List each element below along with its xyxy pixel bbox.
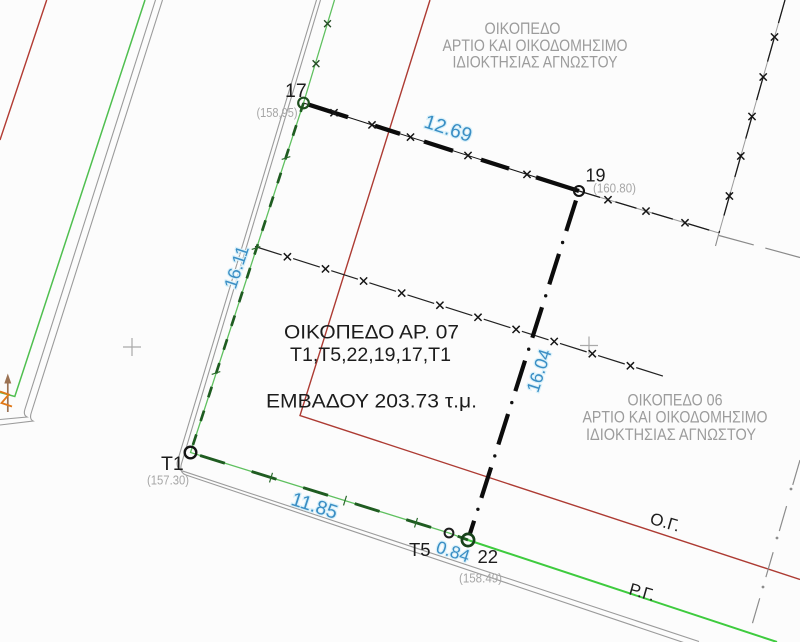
svg-text:(158,95): (158,95) bbox=[257, 105, 298, 120]
svg-text:(160.80): (160.80) bbox=[593, 182, 636, 196]
svg-text:Τ1,Τ5,22,19,17,Τ1: Τ1,Τ5,22,19,17,Τ1 bbox=[290, 345, 451, 366]
svg-text:(158.49): (158.49) bbox=[459, 571, 502, 586]
svg-text:ΙΔΙΟΚΤΗΣΙΑΣ ΑΓΝΩΣΤΟΥ: ΙΔΙΟΚΤΗΣΙΑΣ ΑΓΝΩΣΤΟΥ bbox=[586, 425, 756, 444]
svg-text:ΑΡΤΙΟ ΚΑΙ ΟΙΚΟΔΟΜΗΣΙΜΟ: ΑΡΤΙΟ ΚΑΙ ΟΙΚΟΔΟΜΗΣΙΜΟ bbox=[583, 408, 768, 427]
svg-text:(157.30): (157.30) bbox=[147, 473, 189, 488]
svg-text:ΙΔΙΟΚΤΗΣΙΑΣ ΑΓΝΩΣΤΟΥ: ΙΔΙΟΚΤΗΣΙΑΣ ΑΓΝΩΣΤΟΥ bbox=[453, 53, 618, 72]
svg-text:ΕΜΒΑΔΟΥ 203.73 τ.μ.: ΕΜΒΑΔΟΥ 203.73 τ.μ. bbox=[266, 392, 477, 413]
svg-text:22: 22 bbox=[478, 546, 499, 567]
svg-text:ΟΙΚΟΠΕΔΟ ΑΡ. 07: ΟΙΚΟΠΕΔΟ ΑΡ. 07 bbox=[284, 323, 459, 344]
svg-text:T5: T5 bbox=[409, 539, 431, 560]
svg-text:17: 17 bbox=[285, 80, 307, 102]
